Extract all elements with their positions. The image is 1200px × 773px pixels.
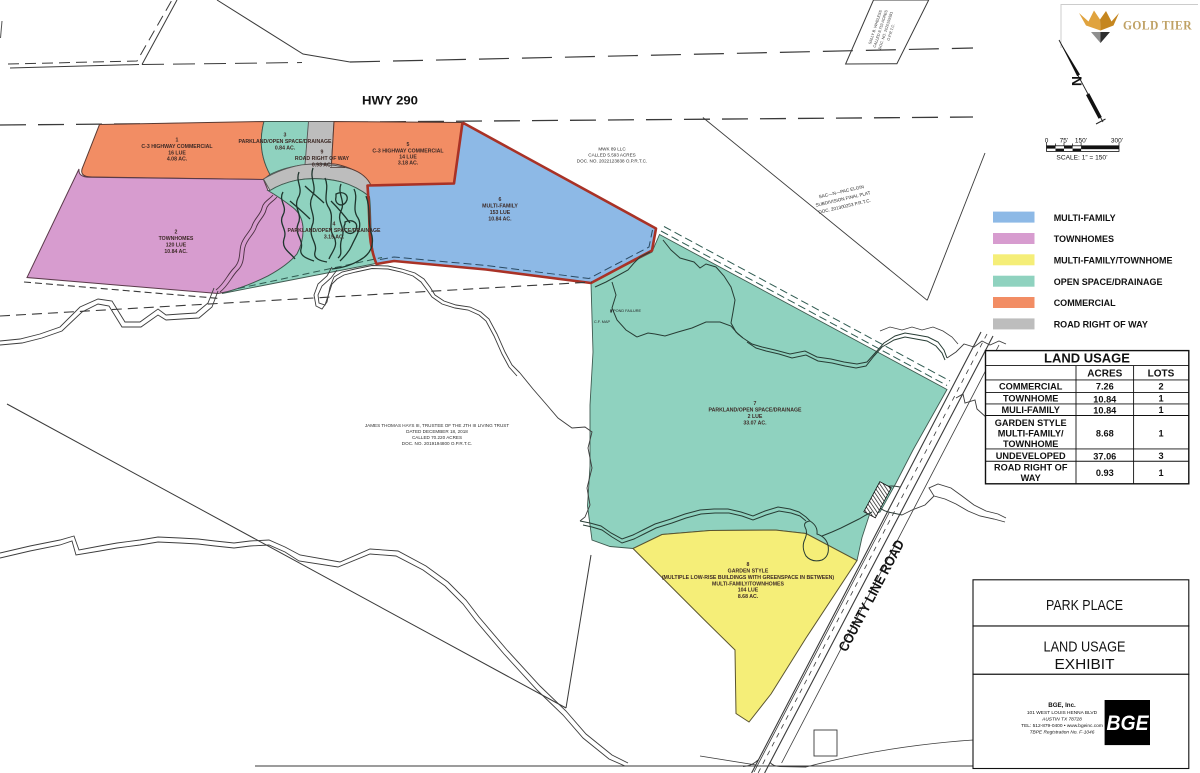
svg-text:1: 1 [1158, 428, 1163, 438]
svg-text:1: 1 [1158, 468, 1163, 478]
svg-text:MULTI-FAMILY: MULTI-FAMILY [482, 204, 518, 210]
svg-text:101 WEST LOUIS HENNA BLVD: 101 WEST LOUIS HENNA BLVD [1027, 710, 1098, 716]
svg-text:9: 9 [321, 150, 324, 156]
svg-text:HWY 290: HWY 290 [362, 94, 418, 108]
svg-text:153 LUE: 153 LUE [490, 210, 511, 216]
svg-text:MWK 89 LLC: MWK 89 LLC [598, 147, 626, 152]
svg-text:MULI-FAMILY: MULI-FAMILY [1002, 405, 1060, 415]
svg-text:4: 4 [333, 222, 336, 228]
svg-text:DATED DECEMBER 18, 2018: DATED DECEMBER 18, 2018 [406, 429, 468, 434]
svg-text:DOC. NO. 2022123838 O.P.R.T.C.: DOC. NO. 2022123838 O.P.R.T.C. [577, 159, 647, 164]
svg-text:0.93: 0.93 [1096, 468, 1114, 478]
svg-text:TEL: 512-879-0400 • www.bgeinc: TEL: 512-879-0400 • www.bgeinc.com [1021, 723, 1103, 729]
svg-text:TBPE Registration No. F-1046: TBPE Registration No. F-1046 [1030, 730, 1095, 736]
svg-text:37.06: 37.06 [1093, 451, 1116, 461]
svg-text:1: 1 [176, 138, 179, 144]
svg-text:▮ POND FAILURE: ▮ POND FAILURE [610, 309, 641, 313]
svg-text:TOWNHOME: TOWNHOME [1003, 439, 1058, 449]
svg-text:10.84 AC.: 10.84 AC. [488, 217, 512, 223]
svg-text:BGE: BGE [1107, 712, 1150, 735]
svg-text:GOLD TIER: GOLD TIER [1123, 18, 1192, 33]
svg-text:2: 2 [175, 230, 178, 236]
svg-text:MULTI-FAMILY/TOWNHOME: MULTI-FAMILY/TOWNHOME [1054, 256, 1173, 266]
svg-text:C-3 HIGHWAY COMMERCIAL: C-3 HIGHWAY COMMERCIAL [141, 144, 213, 150]
svg-text:BGE, Inc.: BGE, Inc. [1048, 702, 1076, 709]
svg-text:GARDEN STYLE: GARDEN STYLE [995, 418, 1067, 428]
svg-text:7.26: 7.26 [1096, 382, 1114, 392]
svg-text:TOWNHOME: TOWNHOME [1003, 393, 1058, 403]
svg-text:COMMERCIAL: COMMERCIAL [1054, 298, 1116, 308]
svg-text:300’: 300’ [1111, 138, 1124, 145]
svg-text:104 LUE: 104 LUE [738, 588, 759, 594]
svg-text:WAY: WAY [1021, 473, 1041, 483]
svg-text:0.93 AC.: 0.93 AC. [312, 163, 333, 169]
svg-text:GARDEN STYLE: GARDEN STYLE [728, 569, 769, 575]
svg-text:LAND USAGE: LAND USAGE [1044, 639, 1126, 656]
svg-text:8: 8 [747, 562, 750, 568]
svg-text:C.F. MAP: C.F. MAP [594, 320, 611, 324]
svg-text:CALLED 5.593 ACRES: CALLED 5.593 ACRES [588, 153, 636, 158]
svg-text:10.84: 10.84 [1093, 394, 1117, 404]
svg-text:N: N [1069, 76, 1085, 86]
svg-text:ROAD RIGHT OF WAY: ROAD RIGHT OF WAY [1054, 320, 1148, 330]
svg-text:4.08 AC.: 4.08 AC. [167, 157, 188, 163]
svg-text:3: 3 [1158, 451, 1163, 461]
svg-text:2: 2 [1158, 382, 1163, 392]
svg-text:OPEN SPACE/DRAINAGE: OPEN SPACE/DRAINAGE [1054, 277, 1163, 287]
svg-text:ROAD RIGHT OF WAY: ROAD RIGHT OF WAY [295, 156, 350, 162]
svg-text:CALLED 70.220 ACRES: CALLED 70.220 ACRES [412, 435, 462, 440]
svg-text:SCALE: 1” = 150’: SCALE: 1” = 150’ [1056, 155, 1108, 162]
svg-text:AUSTIN TX 78728: AUSTIN TX 78728 [1041, 717, 1082, 723]
svg-text:UNDEVELOPED: UNDEVELOPED [996, 451, 1066, 461]
svg-text:0.84 AC.: 0.84 AC. [275, 146, 296, 152]
svg-text:120 LUE: 120 LUE [166, 243, 187, 249]
svg-text:8.68 AC.: 8.68 AC. [738, 594, 759, 600]
svg-text:1: 1 [1158, 393, 1163, 403]
svg-text:MULTI-FAMILY: MULTI-FAMILY [1054, 213, 1116, 223]
svg-text:JAMES THOMAS HAYS III, TRUSTEE: JAMES THOMAS HAYS III, TRUSTEE OF THE JT… [365, 423, 509, 428]
svg-text:10.84 AC.: 10.84 AC. [164, 249, 188, 255]
svg-text:33.07 AC.: 33.07 AC. [743, 421, 767, 427]
svg-text:8.68: 8.68 [1096, 428, 1114, 438]
svg-text:10.84: 10.84 [1093, 405, 1117, 415]
svg-text:EXHIBIT: EXHIBIT [1055, 656, 1115, 673]
svg-text:5: 5 [407, 142, 410, 148]
svg-text:3.15 AC.: 3.15 AC. [324, 235, 345, 241]
svg-text:3.18 AC.: 3.18 AC. [398, 161, 419, 167]
svg-text:PARK PLACE: PARK PLACE [1046, 597, 1123, 614]
svg-text:PARKLAND/OPEN SPACE/DRAINAGE: PARKLAND/OPEN SPACE/DRAINAGE [239, 139, 332, 145]
svg-text:MULTI-FAMILY/: MULTI-FAMILY/ [998, 428, 1064, 438]
svg-text:TOWNHOMES: TOWNHOMES [159, 236, 194, 242]
svg-text:TOWNHOMES: TOWNHOMES [1054, 234, 1114, 244]
svg-text:PARKLAND/OPEN SPACE/DRAINAGE: PARKLAND/OPEN SPACE/DRAINAGE [709, 408, 802, 414]
svg-text:PARKLAND/OPEN SPACE/DRAINAGE: PARKLAND/OPEN SPACE/DRAINAGE [288, 228, 381, 234]
svg-text:3: 3 [284, 133, 287, 139]
svg-text:DOC. NO. 2019194800 O.P.R.T.C.: DOC. NO. 2019194800 O.P.R.T.C. [402, 441, 472, 446]
svg-text:ACRES: ACRES [1087, 369, 1122, 380]
svg-text:2 LUE: 2 LUE [748, 414, 763, 420]
svg-text:ROAD RIGHT OF: ROAD RIGHT OF [994, 463, 1068, 473]
svg-text:6: 6 [499, 197, 502, 203]
svg-text:LOTS: LOTS [1148, 369, 1175, 380]
svg-text:7: 7 [754, 401, 757, 407]
svg-text:1: 1 [1158, 405, 1163, 415]
svg-text:(MULTIPLE LOW-RISE BUILDINGS W: (MULTIPLE LOW-RISE BUILDINGS WITH GREENS… [662, 575, 835, 581]
svg-text:LAND USAGE: LAND USAGE [1044, 350, 1130, 365]
svg-text:COMMERCIAL: COMMERCIAL [999, 382, 1063, 392]
